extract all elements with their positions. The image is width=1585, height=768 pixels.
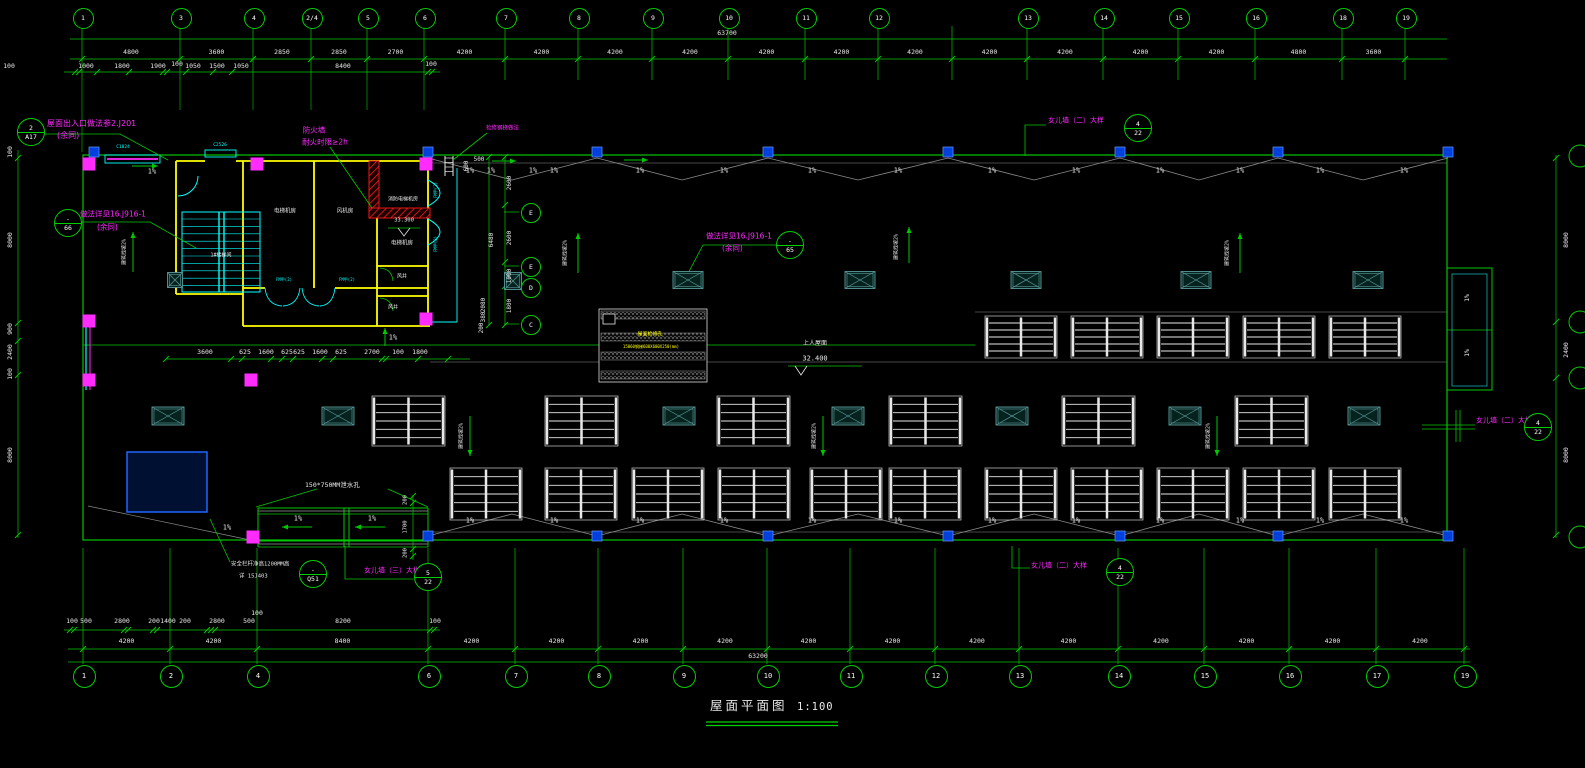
grid-bubble-bottom: 1: [73, 665, 96, 688]
level-333: 33.300: [394, 218, 414, 224]
detail-bubble-5-22-num: 5: [415, 564, 441, 578]
dim-label: 3600: [209, 49, 225, 56]
grid-bubble-bottom: 16: [1279, 665, 1302, 688]
dim-label: 100: [392, 349, 404, 356]
note-detail65: (余同): [722, 244, 743, 252]
grid-bubble-top: 6: [415, 8, 436, 29]
dim-label: 200: [148, 618, 160, 625]
dim-label: 2700: [388, 49, 404, 56]
grid-bubble-top: 14: [1094, 8, 1115, 29]
dim-label: 625: [293, 349, 305, 356]
grid-bubble-bottom: 7: [505, 665, 528, 688]
dim-label: 1600: [312, 349, 328, 356]
dim-label: 200: [403, 495, 409, 505]
slope-label: 1%: [808, 168, 816, 175]
slope-label: 1%: [1464, 349, 1471, 357]
slope-label: 1%: [1072, 518, 1080, 525]
grid-bubble-top: 13: [1018, 8, 1039, 29]
dim-label: 1600: [258, 349, 274, 356]
note-roof-entry: 屋面出入口做法参2.J201: [47, 120, 136, 128]
note-detail66: 做法详见16.J916-1: [80, 210, 146, 218]
dim-label: 4200: [1239, 638, 1255, 645]
dim-label: 4200: [1057, 49, 1073, 56]
dim-label: 1800: [412, 349, 428, 356]
slope-label: 1%: [1400, 168, 1408, 175]
note-detail65: 做法详见16.J916-1: [706, 232, 772, 240]
room-elev: 电梯机房: [391, 241, 413, 247]
slope-label: 1%: [988, 518, 996, 525]
dim-label: 625: [335, 349, 347, 356]
grid-bubble-top: 12: [869, 8, 890, 29]
overall-dim-top: 63700: [717, 30, 737, 37]
grid-bubble-top: 19: [1396, 8, 1417, 29]
slope-label: 1%: [988, 168, 996, 175]
slope-label: 1%: [894, 518, 902, 525]
note-detail66: (余同): [97, 223, 118, 231]
detail-bubble-5-22: 522: [414, 563, 442, 591]
slope-label: 1%: [368, 516, 376, 523]
tank-note: 屋面检修孔: [637, 333, 662, 338]
slope-label: 1%: [720, 168, 728, 175]
dim-label: 4200: [607, 49, 623, 56]
dim-label: 4200: [119, 638, 135, 645]
dim-label: 2400: [7, 344, 14, 360]
grid-bubble-row: E: [521, 203, 541, 223]
slope-label: 1%: [466, 518, 474, 525]
plan-linework: [0, 0, 1585, 768]
grid-bubble-top: 15: [1169, 8, 1190, 29]
detail-bubble-a17-den: A17: [18, 133, 44, 146]
dim-label: 100: [7, 146, 14, 158]
dim-label: 100: [429, 618, 441, 625]
slope-label: 1%: [466, 168, 474, 175]
dim-label: 2850: [331, 49, 347, 56]
slope-label: 1%: [1236, 518, 1244, 525]
grid-bubble-top: 4: [244, 8, 265, 29]
slope-direction-note: 建筑找坡2%: [1207, 423, 1212, 449]
detail-bubble-q51: -Q51: [299, 560, 327, 588]
dim-label: 200: [479, 323, 485, 334]
note-roof-entry: (余同): [57, 132, 79, 140]
slope-label: 1%: [148, 169, 156, 176]
dim-label: 4200: [549, 638, 565, 645]
dim-label: 4200: [982, 49, 998, 56]
cad-roof-plan-canvas[interactable]: 1342/45678910111213141516181948003600285…: [0, 0, 1585, 768]
slope-label: 1%: [636, 518, 644, 525]
dim-label: 4200: [885, 638, 901, 645]
grid-bubble-bottom: 4: [247, 665, 270, 688]
tank-note: 15060钢梯600X600X250(mm): [623, 345, 679, 349]
slope-label: 1%: [487, 168, 495, 175]
dim-label: 8200: [335, 618, 351, 625]
dim-label: 100: [66, 618, 78, 625]
detail-bubble-65: -65: [776, 231, 804, 259]
dim-label: 8000: [7, 447, 14, 463]
slope-label: 1%: [550, 518, 558, 525]
slope-label: 1%: [529, 168, 537, 175]
room-fire-elev: 消防电梯机房: [388, 198, 418, 203]
detail-bubble-a17: 2A17: [17, 118, 45, 146]
dim-label: 8400: [335, 638, 351, 645]
dim-label: 1500: [209, 63, 225, 70]
detail-bubble-4-22-right: 422: [1524, 413, 1552, 441]
detail-bubble-4-22-right-den: 22: [1525, 428, 1551, 441]
level-324: 32.400: [802, 356, 827, 363]
dim-label: 4200: [633, 638, 649, 645]
overall-dim-bottom: 63200: [748, 653, 768, 660]
grid-bubble-top: 1: [73, 8, 94, 29]
slope-label: 1%: [294, 516, 302, 523]
room-stair: 1#楼梯间: [210, 254, 231, 259]
dim-label: 8000: [1563, 447, 1570, 463]
slope-label: 1%: [1464, 294, 1471, 302]
grid-bubble-top: 10: [719, 8, 740, 29]
dim-label: 500: [243, 618, 255, 625]
grid-bubble-bottom: 15: [1194, 665, 1217, 688]
detail-bubble-66-den: 66: [55, 224, 81, 237]
slope-direction-note: 建筑找坡2%: [123, 239, 128, 265]
room-elev-mech: 电梯机房: [274, 209, 296, 215]
dim-label: 1700: [403, 520, 409, 533]
slope-label: 1%: [720, 518, 728, 525]
dim-label: 4200: [682, 49, 698, 56]
dim-label: 4200: [1153, 638, 1169, 645]
detail-bubble-4-22-top: 422: [1124, 114, 1152, 142]
grid-bubble-bottom: 11: [840, 665, 863, 688]
dim-label: 625: [281, 349, 293, 356]
drawing-title: 屋面平面图: [710, 700, 788, 713]
slope-direction-note: 建筑找坡2%: [813, 423, 818, 449]
slope-label: 1%: [1316, 168, 1324, 175]
dim-label: 1050: [233, 63, 249, 70]
dim-label: 4200: [907, 49, 923, 56]
dim-label: 100: [3, 63, 15, 70]
drawing-scale: 1:100: [797, 702, 834, 713]
grid-bubble-top: 3: [171, 8, 192, 29]
grid-bubble-bottom: 17: [1366, 665, 1389, 688]
detail-bubble-66-num: -: [55, 210, 81, 224]
slope-direction-note: 建筑找坡2%: [895, 234, 900, 260]
room-fan: 风机房: [337, 209, 354, 215]
dim-label: 1800: [507, 299, 513, 313]
detail-bubble-q51-num: -: [300, 561, 326, 575]
door-tag: FM甲(2): [339, 278, 355, 282]
slope-label: 1%: [1236, 168, 1244, 175]
note-railing: 安全栏杆净高1200MM高: [231, 562, 289, 568]
dim-label: 200: [179, 618, 191, 625]
room-shaft: 风井: [397, 275, 407, 280]
grid-bubble-top: 9: [643, 8, 664, 29]
dim-label: 100: [251, 610, 263, 617]
detail-bubble-a17-num: 2: [18, 119, 44, 133]
detail-bubble-4-22-right-num: 4: [1525, 414, 1551, 428]
dim-label: 8400: [335, 63, 351, 70]
note-parapet2-bottom: 女儿墙（二）大样: [1031, 563, 1087, 570]
dim-label: 8000: [7, 232, 14, 248]
dim-label: 4200: [1209, 49, 1225, 56]
dim-label: 4800: [123, 49, 139, 56]
note-firewall: 耐火时限≥2h: [302, 138, 348, 146]
slope-label: 1%: [550, 168, 558, 175]
detail-bubble-4-22-bottom-num: 4: [1107, 559, 1133, 573]
grid-bubble-bottom: 12: [925, 665, 948, 688]
detail-bubble-65-num: -: [777, 232, 803, 246]
slope-label: 1%: [223, 525, 231, 532]
dim-label: 4200: [1412, 638, 1428, 645]
dim-label: 2700: [364, 349, 380, 356]
slope-label: 1%: [808, 518, 816, 525]
dim-label: 4200: [717, 638, 733, 645]
dim-label: 2800: [114, 618, 130, 625]
dim-label: 4200: [1325, 638, 1341, 645]
grid-bubble-bottom: 14: [1108, 665, 1131, 688]
slope-label: 1%: [1072, 168, 1080, 175]
grid-bubble-top: 7: [496, 8, 517, 29]
slope-label: 1%: [1156, 518, 1164, 525]
dim-label: 2600: [507, 231, 513, 245]
dim-label: 900: [7, 323, 14, 335]
dim-label: 4200: [464, 638, 480, 645]
note-parapet2-top: 女儿墙（二）大样: [1048, 118, 1104, 125]
grid-bubble-row: E: [521, 257, 541, 277]
grid-bubble-bottom: 10: [757, 665, 780, 688]
detail-bubble-5-22-den: 22: [415, 578, 441, 591]
dim-label: 1400: [160, 618, 176, 625]
grid-bubble-bottom: 19: [1454, 665, 1477, 688]
grid-bubble-row: D: [521, 278, 541, 298]
grid-bubble-bottom: 8: [588, 665, 611, 688]
grid-bubble-top: 2/4: [302, 8, 323, 29]
dim-label: 2080: [481, 298, 487, 312]
note-ladder: 检修钢梯做法: [486, 126, 519, 132]
detail-bubble-q51-den: Q51: [300, 575, 326, 588]
dim-label: 4800: [1291, 49, 1307, 56]
dim-label: 8000: [1563, 232, 1570, 248]
dim-label: 500: [80, 618, 92, 625]
dim-label: 1900: [150, 63, 166, 70]
dim-label: 2600: [507, 176, 513, 190]
dim-label: 3600: [1366, 49, 1382, 56]
grid-bubble-row: C: [521, 315, 541, 335]
slope-direction-note: 建筑找坡2%: [1226, 240, 1231, 266]
dim-label: 100: [425, 61, 437, 68]
dim-label: 1050: [185, 63, 201, 70]
note-parapet3: 女儿墙（三）大样: [364, 568, 420, 575]
door-tag: FM甲(2): [434, 236, 438, 252]
dim-label: 2800: [209, 618, 225, 625]
dim-label: 4200: [1061, 638, 1077, 645]
dim-label: 100: [7, 368, 14, 380]
slope-label: 1%: [1316, 518, 1324, 525]
detail-bubble-66: -66: [54, 209, 82, 237]
detail-bubble-4-22-bottom: 422: [1106, 558, 1134, 586]
dim-label: 625: [239, 349, 251, 356]
slope-label: 1%: [636, 168, 644, 175]
slope-label: 1%: [894, 168, 902, 175]
grid-bubble-top: 5: [358, 8, 379, 29]
dim-label: 4200: [834, 49, 850, 56]
room-shaft: 风井: [388, 306, 398, 311]
window-tag: C2526: [213, 144, 227, 149]
dim-label: 200: [403, 548, 409, 558]
dim-label: 3600: [197, 349, 213, 356]
dim-label: 4200: [759, 49, 775, 56]
detail-bubble-4-22-top-den: 22: [1125, 129, 1151, 142]
slope-label: 1%: [1156, 168, 1164, 175]
dim-label: 500: [474, 157, 485, 163]
grid-bubble-bottom: 2: [160, 665, 183, 688]
grid-bubble-top: 16: [1246, 8, 1267, 29]
dim-label: 6480: [489, 233, 495, 247]
dim-label: 380: [481, 312, 487, 323]
dim-label: 2850: [274, 49, 290, 56]
dim-label: 100: [171, 61, 183, 68]
slope-direction-note: 建筑找坡2%: [460, 423, 465, 449]
note-firewall: 防火墙: [303, 126, 326, 134]
dim-label: 4200: [457, 49, 473, 56]
upper-roof-label: 上人屋面: [803, 341, 827, 347]
window-tag: C1824: [116, 146, 130, 151]
slope-label: 1%: [1400, 518, 1408, 525]
grid-bubble-bottom: 13: [1009, 665, 1032, 688]
detail-bubble-4-22-top-num: 4: [1125, 115, 1151, 129]
dim-label: 4200: [534, 49, 550, 56]
note-scupper: 150*750MM泄水孔: [305, 482, 360, 489]
dim-label: 2400: [1563, 342, 1570, 358]
detail-bubble-65-den: 65: [777, 246, 803, 259]
dim-label: 4200: [969, 638, 985, 645]
grid-bubble-top: 18: [1333, 8, 1354, 29]
detail-bubble-4-22-bottom-den: 22: [1107, 573, 1133, 586]
grid-bubble-top: 8: [569, 8, 590, 29]
door-tag: FM甲(2): [434, 182, 438, 198]
grid-bubble-top: 11: [796, 8, 817, 29]
grid-bubble-bottom: 6: [418, 665, 441, 688]
dim-label: 1000: [78, 63, 94, 70]
dim-label: 1800: [114, 63, 130, 70]
slope-label: 1%: [389, 335, 397, 342]
slope-direction-note: 建筑找坡2%: [564, 240, 569, 266]
door-tag: FM甲(2): [276, 278, 292, 282]
dim-label: 4200: [206, 638, 222, 645]
dim-label: 1000: [507, 269, 513, 283]
note-railing: 详 15J403: [239, 574, 268, 580]
grid-bubble-bottom: 9: [673, 665, 696, 688]
dim-label: 4200: [801, 638, 817, 645]
dim-label: 4200: [1133, 49, 1149, 56]
